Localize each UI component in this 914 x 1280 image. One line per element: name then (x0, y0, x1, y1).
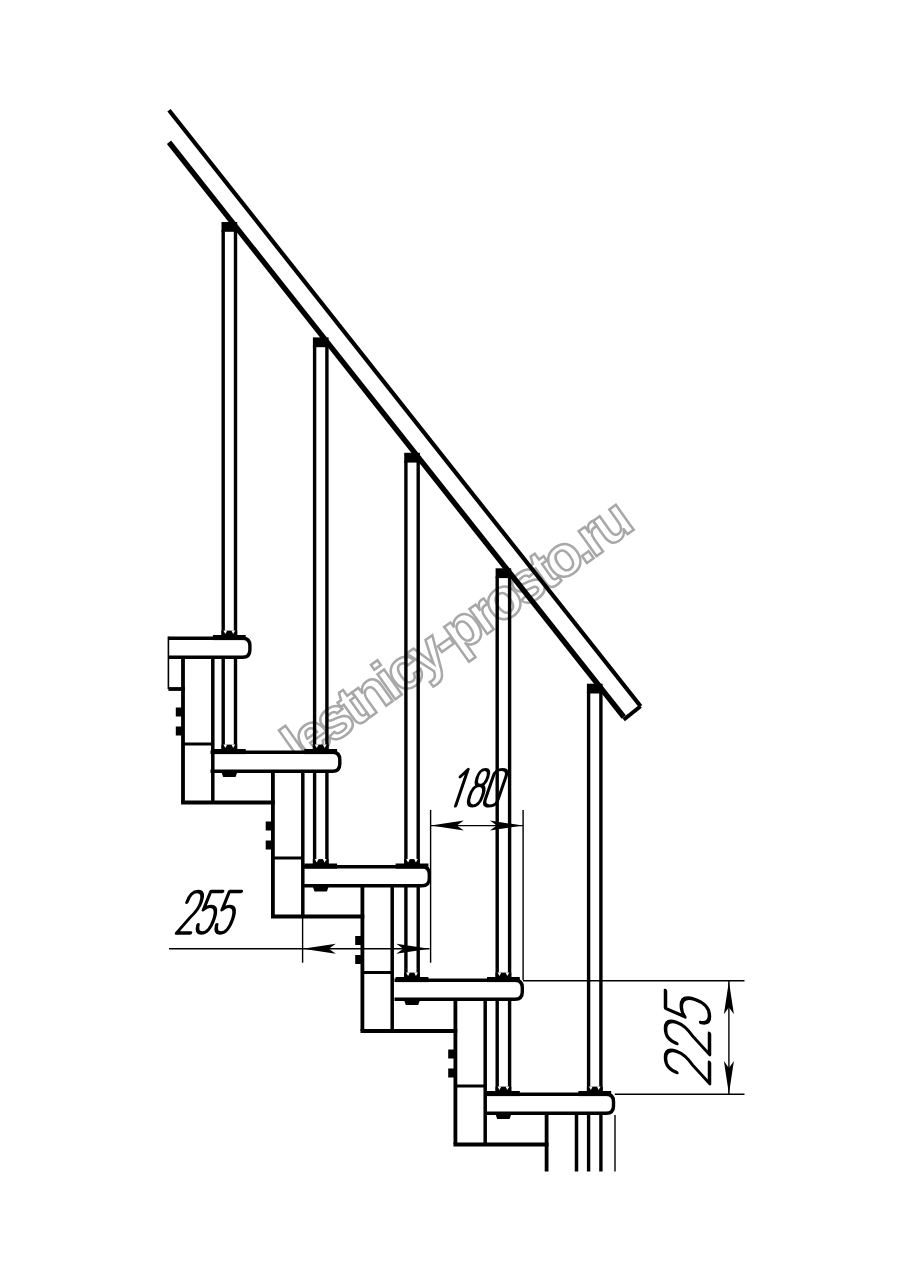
svg-text:lestnicy-prosto.ru: lestnicy-prosto.ru (269, 486, 641, 776)
